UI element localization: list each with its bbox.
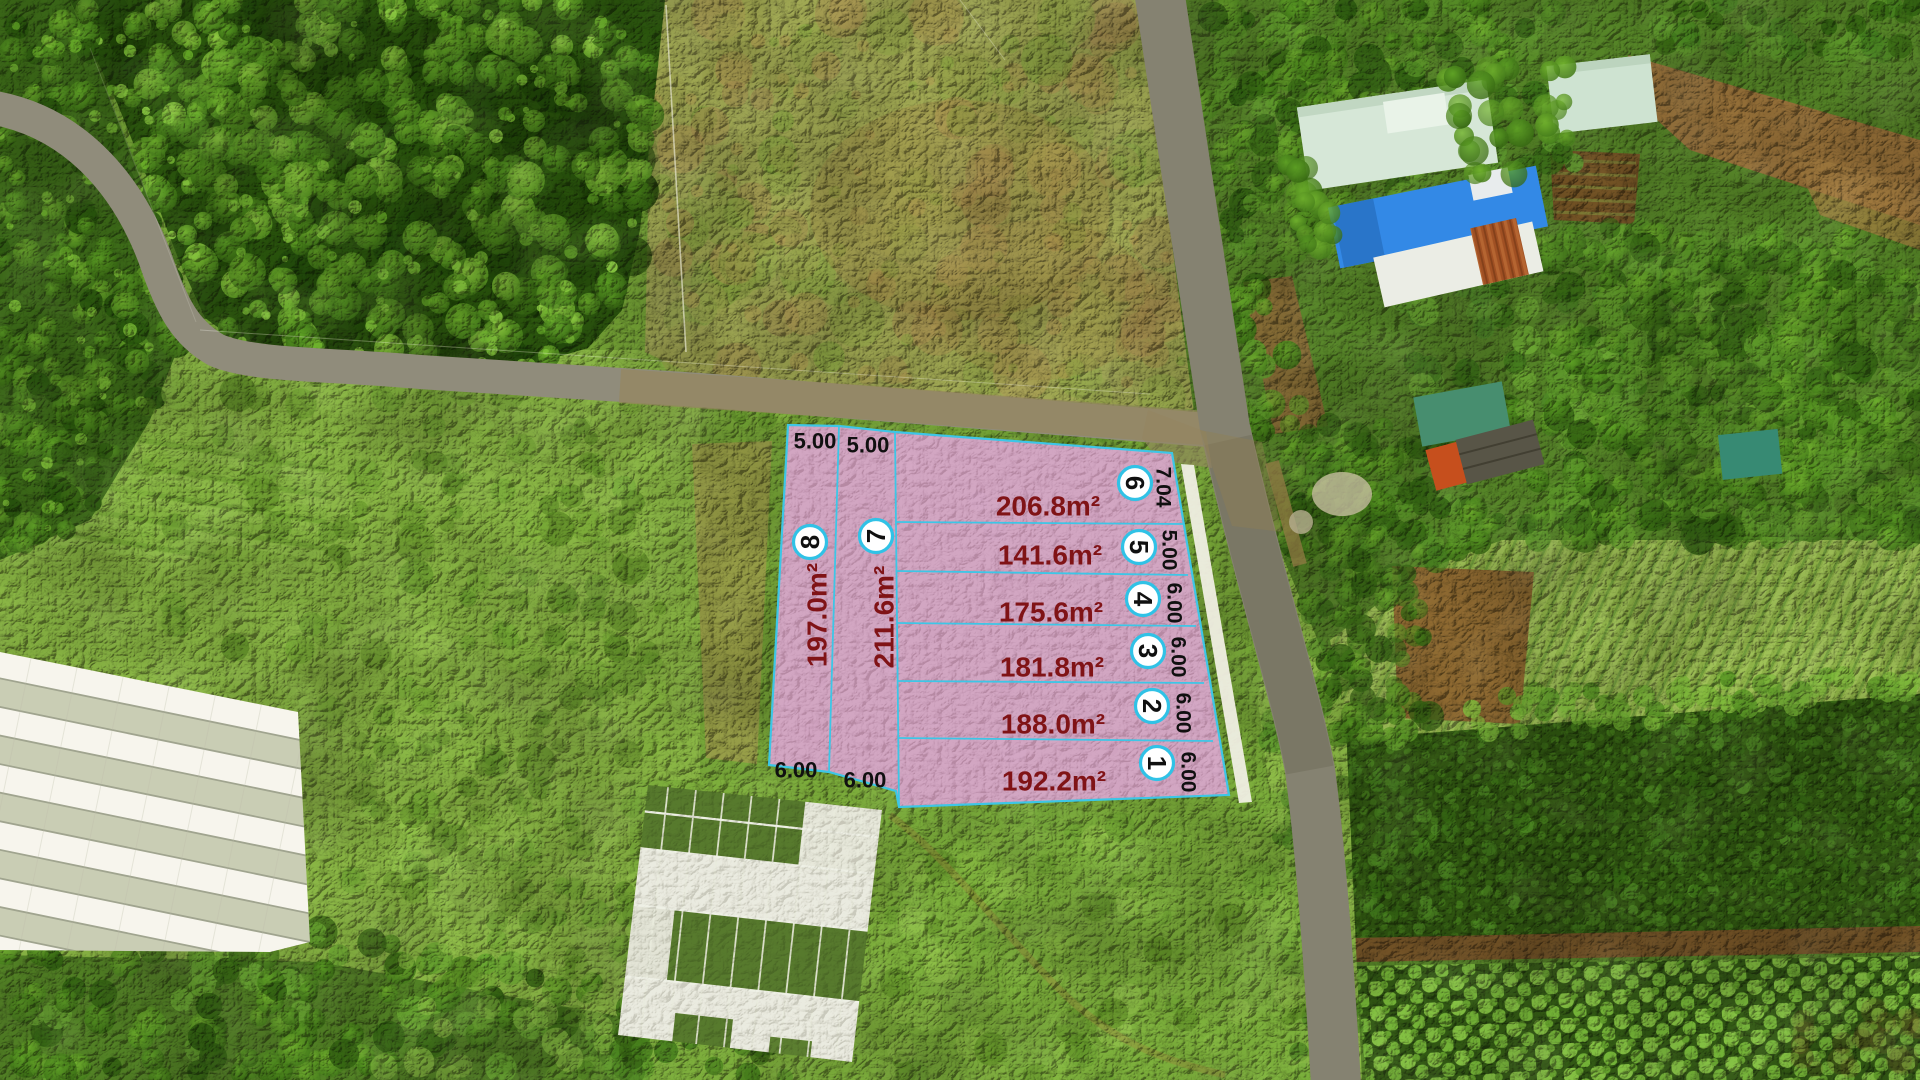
svg-text:3: 3	[1133, 644, 1163, 658]
svg-text:5: 5	[1124, 540, 1154, 554]
svg-text:141.6m²: 141.6m²	[998, 540, 1102, 571]
svg-text:206.8m²: 206.8m²	[996, 491, 1100, 522]
svg-text:197.0m²: 197.0m²	[802, 563, 833, 667]
svg-text:5.00: 5.00	[847, 433, 890, 458]
svg-text:188.0m²: 188.0m²	[1001, 709, 1105, 740]
svg-text:6.00: 6.00	[1172, 693, 1195, 734]
svg-text:5.00: 5.00	[794, 429, 837, 454]
svg-text:8: 8	[795, 535, 825, 549]
svg-text:1: 1	[1142, 756, 1172, 770]
svg-text:211.6m²: 211.6m²	[869, 566, 900, 669]
svg-text:2: 2	[1137, 699, 1167, 713]
svg-text:6.00: 6.00	[1167, 637, 1190, 678]
svg-text:6.00: 6.00	[1163, 583, 1186, 624]
svg-text:181.8m²: 181.8m²	[1000, 652, 1104, 683]
svg-text:5.00: 5.00	[1158, 530, 1181, 571]
svg-text:175.6m²: 175.6m²	[999, 597, 1103, 628]
svg-text:6: 6	[1120, 476, 1150, 490]
svg-text:4: 4	[1128, 592, 1158, 607]
svg-text:7.04: 7.04	[1152, 467, 1175, 508]
svg-text:192.2m²: 192.2m²	[1002, 766, 1106, 797]
svg-text:6.00: 6.00	[1177, 752, 1200, 793]
svg-text:7: 7	[861, 529, 891, 543]
svg-text:6.00: 6.00	[775, 758, 818, 783]
svg-text:6.00: 6.00	[844, 768, 887, 793]
